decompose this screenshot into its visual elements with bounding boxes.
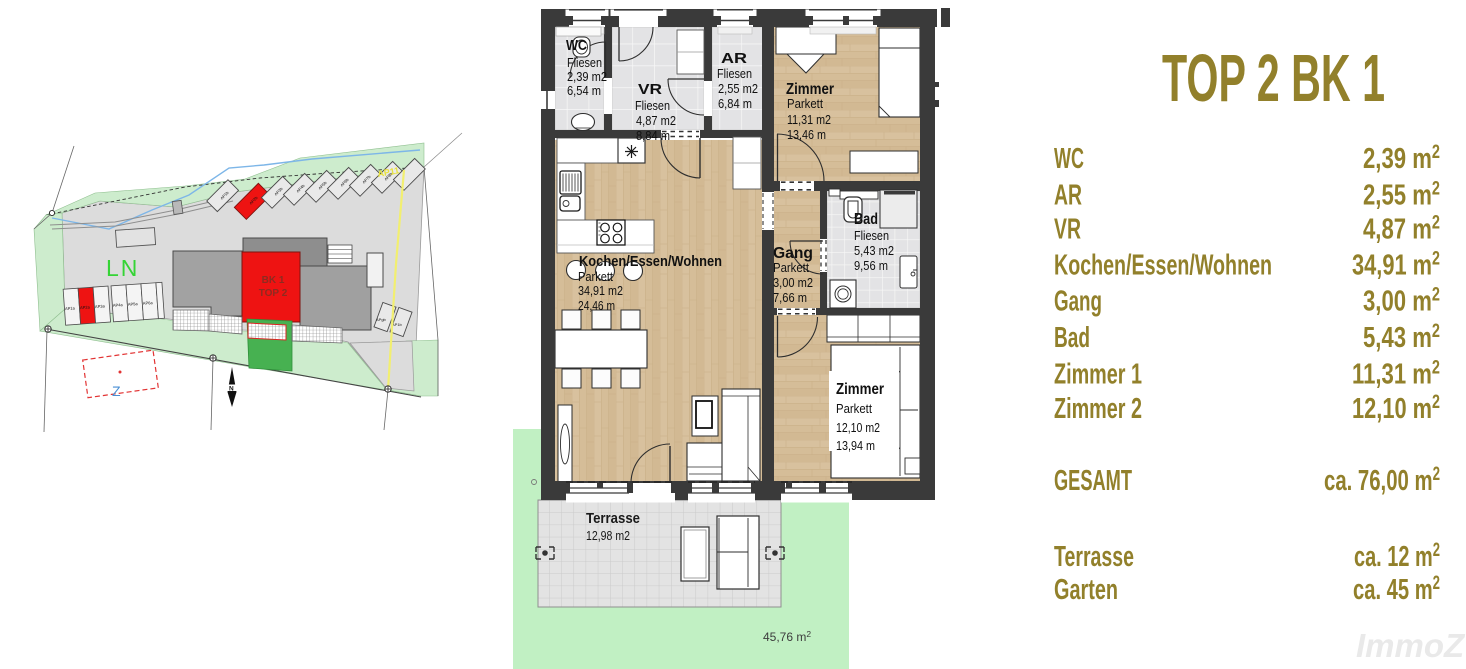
svg-text:LN: LN — [106, 255, 139, 281]
svg-text:Terrasse: Terrasse — [1054, 541, 1134, 573]
svg-text:5,43 m2: 5,43 m2 — [854, 244, 894, 258]
svg-text:Zimmer: Zimmer — [786, 81, 834, 98]
svg-text:4,87 m2: 4,87 m2 — [636, 114, 676, 128]
svg-text:13,46 m: 13,46 m — [787, 128, 826, 142]
svg-text:N: N — [229, 386, 234, 393]
svg-text:VR: VR — [638, 81, 662, 98]
svg-text:45,76 m2: 45,76 m2 — [763, 629, 811, 644]
svg-text:4,87 m2: 4,87 m2 — [1363, 213, 1440, 246]
svg-text:8,84 m: 8,84 m — [636, 129, 670, 143]
svg-text:VR: VR — [1054, 214, 1081, 246]
svg-text:Garten: Garten — [1054, 574, 1118, 606]
svg-text:Parkett: Parkett — [773, 261, 809, 275]
svg-text:Parkett: Parkett — [578, 270, 613, 284]
svg-text:3,00 m2: 3,00 m2 — [773, 276, 813, 290]
svg-text:11,31 m2: 11,31 m2 — [1352, 358, 1440, 391]
svg-text:6,54 m: 6,54 m — [567, 84, 601, 98]
svg-text:9,56 m: 9,56 m — [854, 259, 888, 273]
svg-text:AP3a: AP3a — [95, 303, 106, 309]
svg-text:Bad: Bad — [1054, 322, 1090, 354]
svg-text:Fliesen: Fliesen — [635, 99, 670, 113]
svg-text:Z: Z — [112, 383, 121, 399]
svg-text:Kochen/Essen/Wohnen: Kochen/Essen/Wohnen — [1054, 250, 1272, 282]
svg-text:Fliesen: Fliesen — [717, 67, 752, 81]
svg-text:5,43 m2: 5,43 m2 — [1363, 321, 1440, 354]
svg-text:BK 1: BK 1 — [262, 275, 285, 286]
svg-text:2,39 m2: 2,39 m2 — [567, 70, 607, 84]
svg-text:13,94 m: 13,94 m — [836, 439, 875, 453]
svg-text:WC: WC — [1054, 143, 1084, 175]
svg-text:Kochen/Essen/Wohnen: Kochen/Essen/Wohnen — [579, 254, 722, 270]
svg-text:12,10 m2: 12,10 m2 — [1352, 392, 1440, 425]
svg-text:TOP 2: TOP 2 — [259, 288, 288, 299]
svg-text:Fliesen: Fliesen — [567, 56, 602, 70]
svg-text:Zimmer 2: Zimmer 2 — [1054, 393, 1142, 425]
svg-text:34,91 m2: 34,91 m2 — [1352, 249, 1440, 282]
svg-text:2,55 m2: 2,55 m2 — [1363, 179, 1440, 212]
svg-text:12,98 m2: 12,98 m2 — [586, 529, 630, 543]
svg-text:ca. 45 m2: ca. 45 m2 — [1353, 573, 1440, 606]
svg-text:AP5a: AP5a — [128, 301, 139, 307]
svg-text:3,00 m2: 3,00 m2 — [1363, 285, 1440, 318]
svg-text:Zimmer: Zimmer — [836, 381, 884, 398]
svg-text:Gang: Gang — [773, 245, 813, 262]
svg-text:2,39 m2: 2,39 m2 — [1363, 142, 1440, 175]
svg-text:AR: AR — [1054, 180, 1082, 212]
svg-text:ca. 12 m2: ca. 12 m2 — [1354, 540, 1440, 573]
svg-text:ca. 76,00 m2: ca. 76,00 m2 — [1324, 464, 1440, 497]
svg-text:APgb: APgb — [376, 317, 387, 322]
svg-text:Parkett: Parkett — [787, 97, 823, 111]
svg-text:11,31 m2: 11,31 m2 — [787, 113, 831, 127]
svg-text:Bad: Bad — [854, 211, 878, 228]
svg-text:WC: WC — [566, 37, 587, 54]
svg-text:AP2a: AP2a — [80, 304, 91, 310]
svg-text:Zimmer 1: Zimmer 1 — [1054, 359, 1142, 391]
svg-text:Parkett: Parkett — [836, 402, 872, 416]
svg-text:GESAMT: GESAMT — [1054, 465, 1132, 497]
svg-text:TOP 2 BK 1: TOP 2 BK 1 — [1162, 41, 1385, 116]
svg-text:AP6a: AP6a — [143, 300, 154, 306]
svg-text:2,55 m2: 2,55 m2 — [718, 82, 758, 96]
svg-text:6,84 m: 6,84 m — [718, 97, 752, 111]
svg-text:34,91 m2: 34,91 m2 — [578, 284, 623, 298]
svg-text:Gang: Gang — [1054, 286, 1102, 318]
svg-text:ImmoZ: ImmoZ — [1356, 627, 1466, 664]
svg-text:12,10 m2: 12,10 m2 — [836, 421, 880, 435]
svg-text:7,66 m: 7,66 m — [773, 291, 807, 305]
svg-text:24,46 m: 24,46 m — [578, 299, 615, 313]
svg-text:Terrasse: Terrasse — [586, 511, 640, 527]
svg-text:AP1a: AP1a — [65, 305, 76, 311]
svg-text:Fliesen: Fliesen — [854, 229, 889, 243]
svg-text:AP1b: AP1b — [392, 322, 403, 327]
svg-text:AR: AR — [721, 50, 747, 67]
svg-text:AP4a: AP4a — [113, 302, 124, 308]
